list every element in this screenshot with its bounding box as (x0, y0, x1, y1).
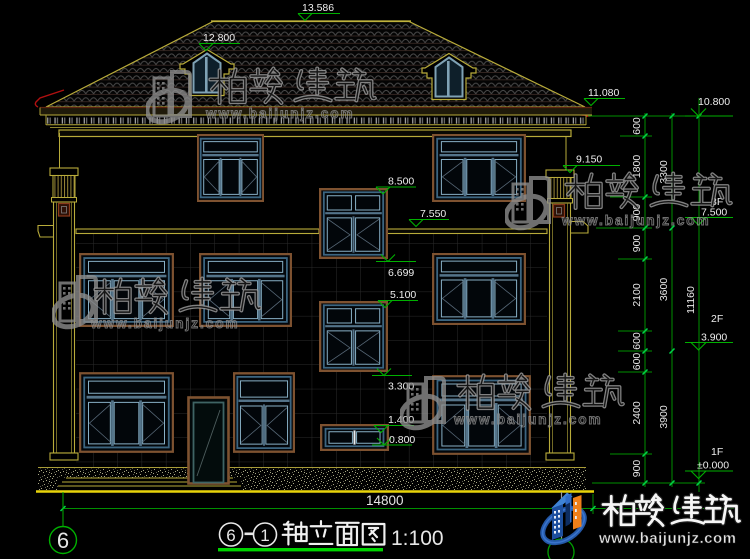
svg-text:1:100: 1:100 (391, 527, 444, 550)
svg-text:600: 600 (631, 117, 643, 135)
svg-text:3.900: 3.900 (701, 332, 727, 344)
svg-text:6: 6 (57, 528, 69, 553)
svg-text:1800: 1800 (631, 155, 643, 179)
svg-text:11.080: 11.080 (588, 87, 619, 99)
svg-text:www.baijunjz.com: www.baijunjz.com (205, 106, 355, 121)
svg-text:3.300: 3.300 (388, 381, 414, 393)
svg-text:600: 600 (631, 332, 643, 350)
svg-text:www.baijunjz.com: www.baijunjz.com (598, 530, 736, 547)
svg-text:6.699: 6.699 (388, 267, 414, 279)
svg-text:600: 600 (631, 353, 643, 371)
svg-text:6: 6 (226, 526, 235, 545)
svg-text:2100: 2100 (631, 283, 643, 307)
svg-text:www.baijunjz.com: www.baijunjz.com (90, 316, 240, 331)
svg-text:3900: 3900 (658, 405, 670, 429)
svg-text:±0.000: ±0.000 (697, 460, 729, 472)
svg-text:www.baijunjz.com: www.baijunjz.com (561, 213, 711, 228)
svg-text:11160: 11160 (685, 286, 697, 314)
svg-text:900: 900 (631, 235, 643, 253)
svg-text:10.800: 10.800 (698, 96, 730, 108)
svg-text:900: 900 (631, 460, 643, 478)
svg-text:5.100: 5.100 (390, 289, 416, 301)
svg-text:9.150: 9.150 (576, 154, 602, 166)
svg-text:13.586: 13.586 (302, 2, 334, 14)
svg-text:2F: 2F (711, 313, 723, 325)
svg-text:8.500: 8.500 (388, 176, 414, 188)
svg-text:2400: 2400 (631, 401, 643, 425)
svg-text:1F: 1F (711, 446, 723, 458)
svg-text:3600: 3600 (658, 278, 670, 302)
svg-text:14800: 14800 (366, 493, 404, 508)
svg-text:1: 1 (260, 526, 269, 545)
svg-text:0.800: 0.800 (389, 434, 415, 446)
svg-text:12.800: 12.800 (203, 32, 235, 44)
svg-text:www.baijunjz.com: www.baijunjz.com (453, 412, 603, 427)
svg-text:7.550: 7.550 (420, 208, 446, 220)
